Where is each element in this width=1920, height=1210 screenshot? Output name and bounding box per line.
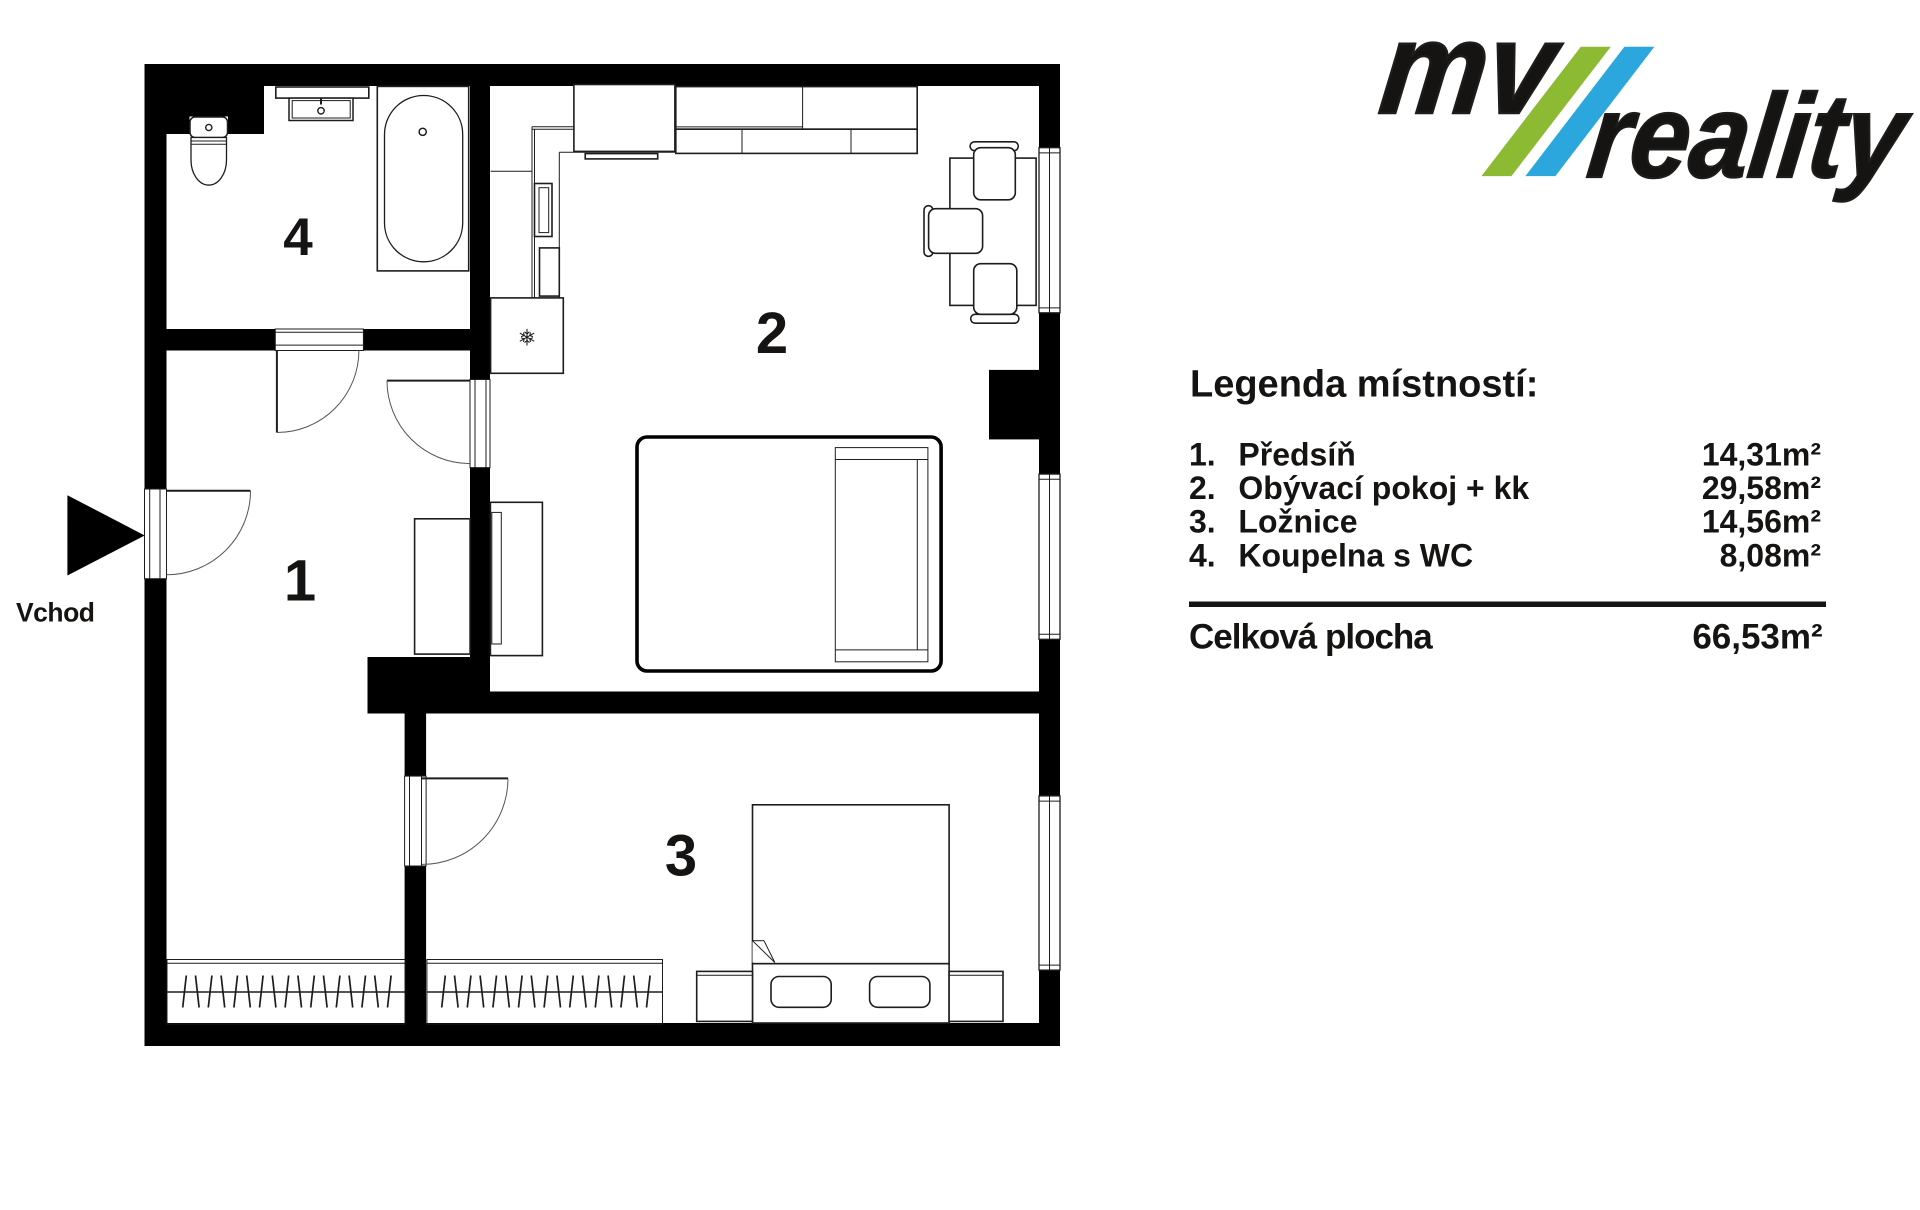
svg-text:66,53m²: 66,53m² — [1692, 618, 1822, 657]
svg-text:Obývací pokoj + kk: Obývací pokoj + kk — [1238, 470, 1529, 506]
svg-text:3: 3 — [665, 824, 697, 889]
svg-text:4: 4 — [283, 208, 313, 267]
svg-text:Vchod: Vchod — [16, 598, 94, 628]
svg-text:14,56m²: 14,56m² — [1702, 504, 1821, 540]
svg-text:14,31m²: 14,31m² — [1702, 436, 1821, 472]
svg-text:2: 2 — [756, 301, 788, 366]
svg-text:1: 1 — [284, 549, 316, 614]
svg-text:4.: 4. — [1189, 537, 1216, 573]
svg-text:Předsíň: Předsíň — [1238, 436, 1355, 472]
svg-text:3.: 3. — [1189, 504, 1216, 540]
svg-text:29,58m²: 29,58m² — [1702, 470, 1821, 506]
svg-text:1.: 1. — [1189, 436, 1216, 472]
svg-text:reality: reality — [1582, 70, 1918, 203]
svg-text:Koupelna s WC: Koupelna s WC — [1238, 537, 1473, 573]
svg-text:8,08m²: 8,08m² — [1720, 537, 1821, 573]
svg-text:Celková plocha: Celková plocha — [1189, 618, 1433, 657]
svg-text:Legenda místností:: Legenda místností: — [1190, 364, 1538, 406]
svg-text:2.: 2. — [1189, 470, 1216, 506]
svg-text:Ložnice: Ložnice — [1238, 504, 1357, 540]
